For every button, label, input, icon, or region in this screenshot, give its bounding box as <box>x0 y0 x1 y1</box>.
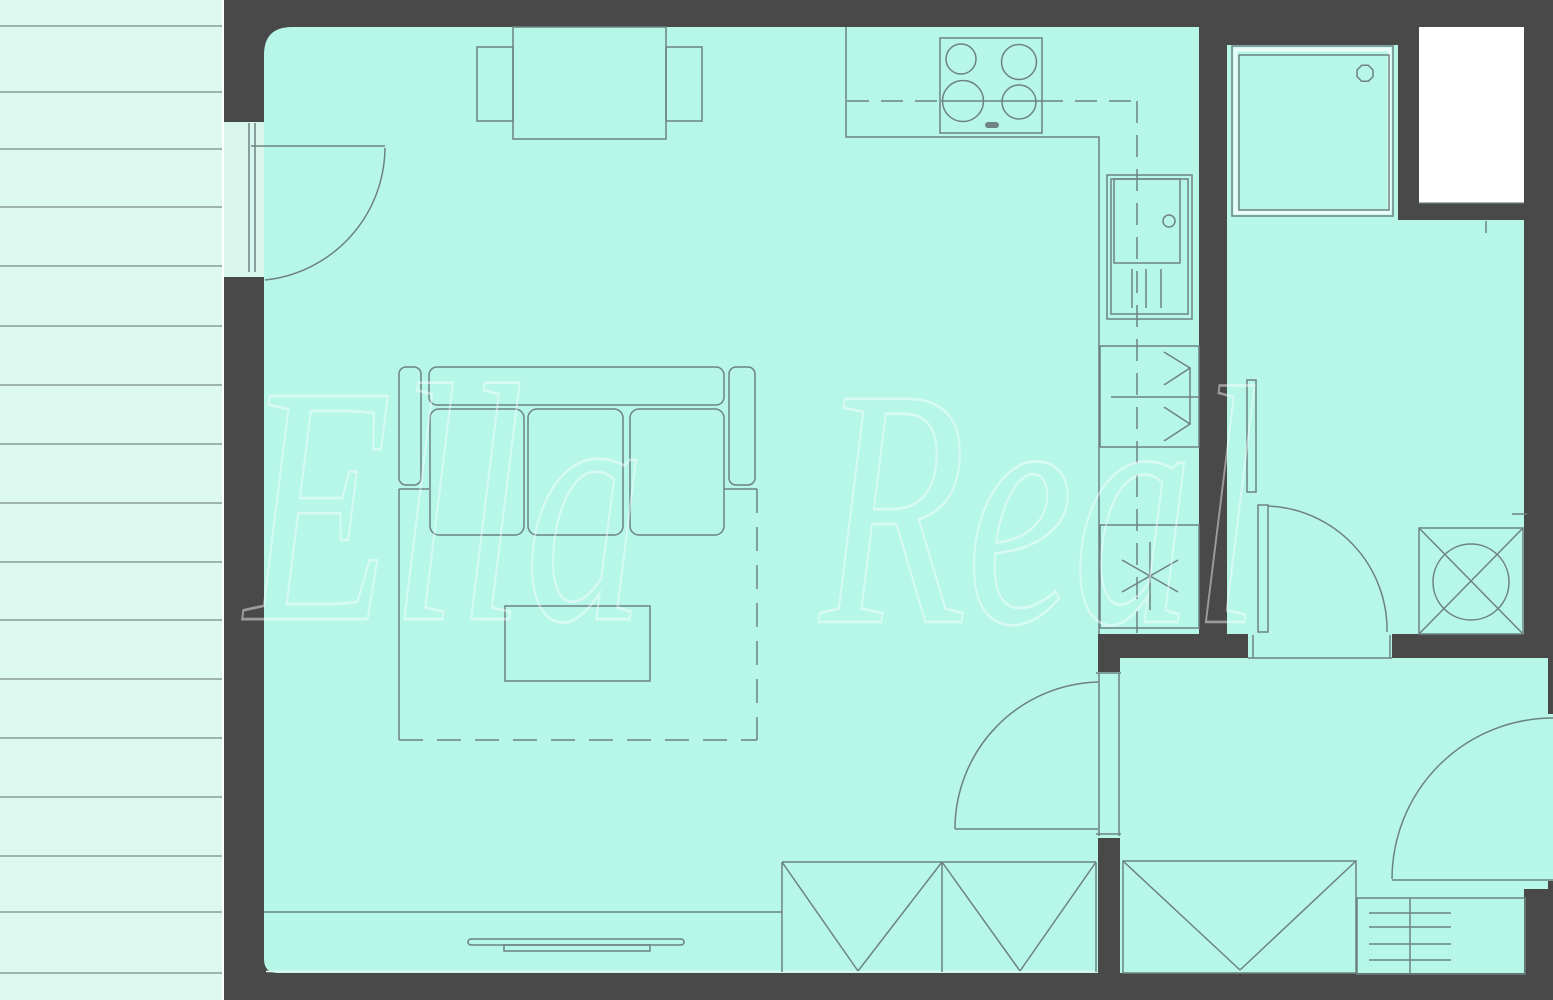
svg-text:Real: Real <box>816 318 1260 696</box>
svg-text:Ella: Ella <box>241 315 645 693</box>
